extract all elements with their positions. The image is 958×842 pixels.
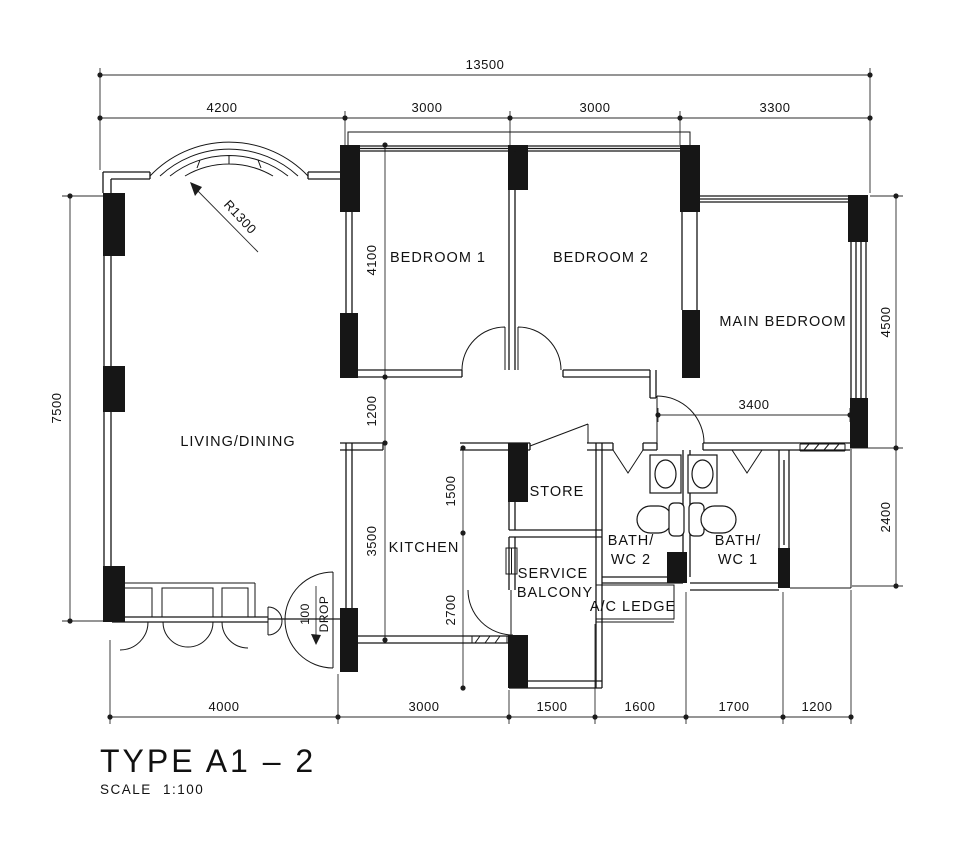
window-panel (222, 588, 248, 617)
drop-value: 100 (298, 603, 312, 625)
room-label-bath1-line1: BATH/ (715, 533, 762, 549)
drop-label: DROP (317, 596, 331, 633)
balcony-door (468, 590, 513, 637)
dim-right-1: 4500 (878, 307, 893, 338)
dim-top-3: 3000 (580, 100, 611, 115)
room-label-living-dining: LIVING/DINING (180, 434, 295, 450)
window-panel (162, 588, 213, 617)
bedroom2-door (518, 327, 561, 370)
floor-plan-drawing: 13500 4200 3000 3000 3300 7500 4500 2400… (0, 0, 958, 842)
dim-overall-width: 13500 (466, 57, 505, 72)
dim-bottom-4: 1600 (625, 699, 656, 714)
dim-bottom-1: 4000 (209, 699, 240, 714)
dim-top-2: 3000 (412, 100, 443, 115)
drawing-title: TYPE A1 – 2 (100, 743, 316, 779)
basin-bowl-bath2 (655, 460, 676, 488)
basin-bowl-bath1 (692, 460, 713, 488)
dim-top-4: 3300 (760, 100, 791, 115)
dim-arch-radius: R1300 (221, 197, 260, 237)
dim-bottom-6: 1200 (802, 699, 833, 714)
dim-bottom-3: 1500 (537, 699, 568, 714)
wall-columns (103, 145, 868, 688)
dim-bottom-2: 3000 (409, 699, 440, 714)
dim-kitchen-depth: 3500 (364, 526, 379, 557)
dim-corridor: 1200 (364, 396, 379, 427)
room-labels: BEDROOM 1 BEDROOM 2 MAIN BEDROOM LIVING/… (180, 250, 846, 615)
dimension-lines (62, 68, 903, 724)
room-label-store: STORE (530, 484, 585, 500)
title-block: TYPE A1 – 2 SCALE 1:100 (100, 743, 316, 797)
store-door (530, 424, 588, 446)
kitchen-window (472, 636, 507, 643)
room-label-ac-ledge: A/C LEDGE (590, 599, 676, 615)
dim-main-bedroom-width: 3400 (739, 397, 770, 412)
room-label-bath2-line1: BATH/ (608, 533, 655, 549)
room-label-service: SERVICE (518, 566, 588, 582)
dim-left-total: 7500 (49, 393, 64, 424)
wc-bath1 (701, 506, 736, 533)
bedroom1-door (462, 327, 505, 370)
window-panel (124, 588, 152, 617)
room-label-balcony: BALCONY (517, 585, 593, 601)
room-label-bedroom1: BEDROOM 1 (390, 250, 486, 266)
entrance-side-door (268, 607, 282, 635)
dim-right-2: 2400 (878, 502, 893, 533)
bath1-folding-door (732, 450, 762, 473)
dim-top-1: 4200 (207, 100, 238, 115)
room-label-main-bedroom: MAIN BEDROOM (719, 314, 846, 330)
bath2-folding-door (613, 450, 643, 473)
room-label-kitchen: KITCHEN (389, 540, 460, 556)
main-bedroom-door (657, 396, 704, 443)
dim-bedroom1-depth: 4100 (364, 245, 379, 276)
scale-label: SCALE (100, 782, 152, 797)
room-label-bath1-line2: WC 1 (718, 552, 758, 568)
room-label-bedroom2: BEDROOM 2 (553, 250, 649, 266)
room-label-bath2-line2: WC 2 (611, 552, 651, 568)
balcony-swing-doors (120, 622, 248, 650)
dim-store-depth: 1500 (443, 476, 458, 507)
dim-bottom-5: 1700 (719, 699, 750, 714)
arch-bay-window (150, 142, 308, 176)
wc-bath2 (637, 506, 672, 533)
wc-cistern-bath2 (669, 503, 684, 536)
fixtures (637, 455, 736, 536)
dim-balcony-depth: 2700 (443, 595, 458, 626)
scale-value: 1:100 (163, 782, 204, 797)
